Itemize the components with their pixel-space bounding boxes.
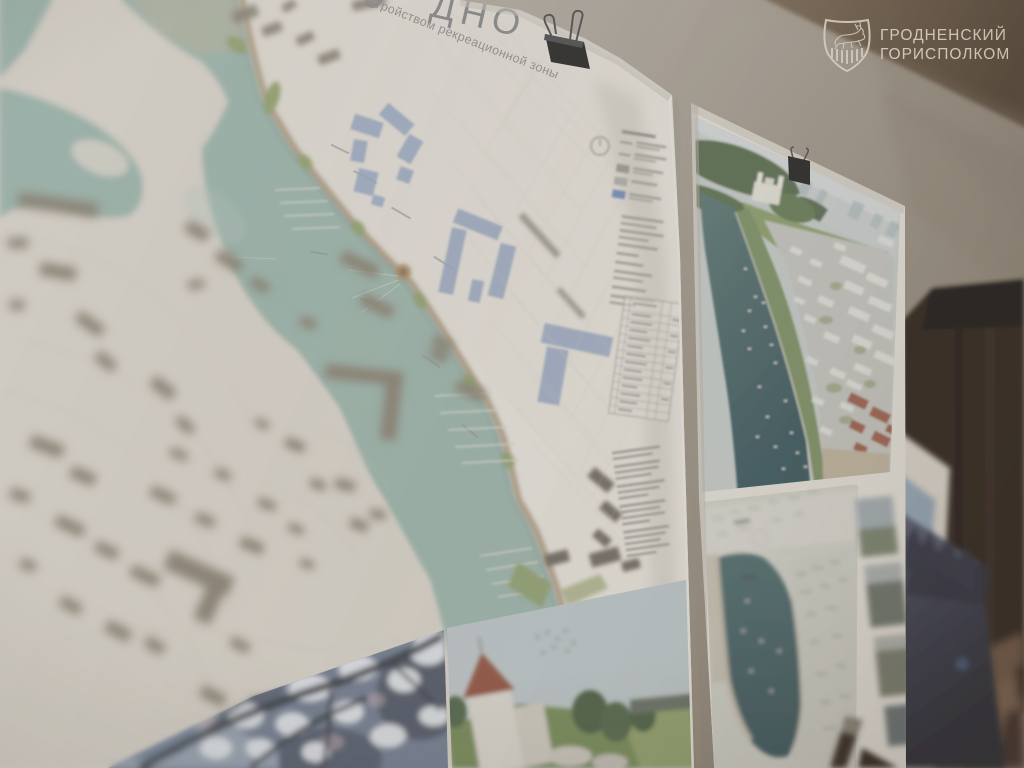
svg-text:ГОРИСПОЛКОМ: ГОРИСПОЛКОМ xyxy=(880,46,1010,63)
svg-text:ГРОДНЕНСКИЙ: ГРОДНЕНСКИЙ xyxy=(880,26,1007,44)
